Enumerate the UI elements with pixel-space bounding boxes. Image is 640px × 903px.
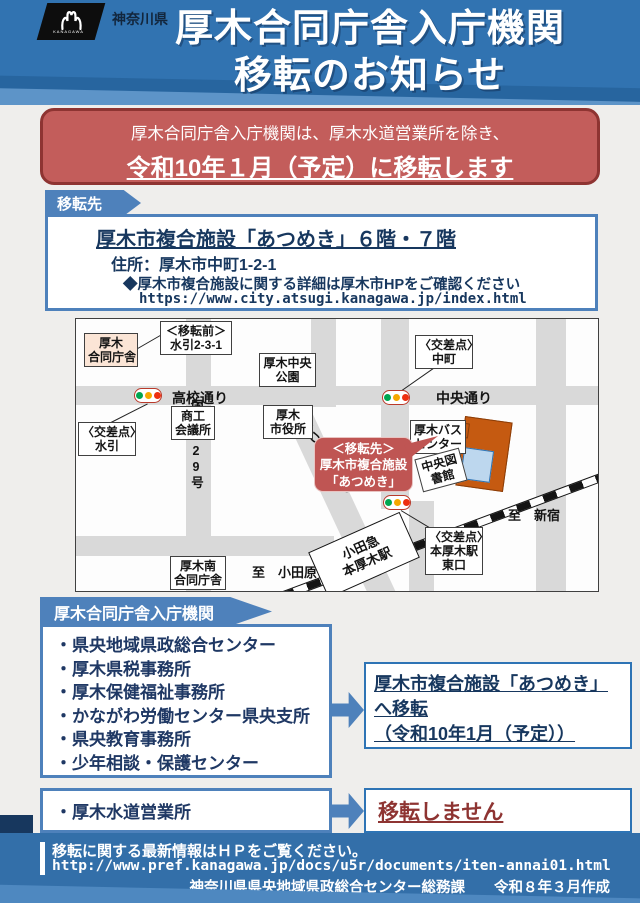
kanagawa-logo-text: KANAGAWA: [53, 29, 84, 34]
relocation-banner: 厚木合同庁舎入庁機関は、厚木水道営業所を除き、 令和10年１月（予定）に移転しま…: [40, 108, 600, 185]
footer-navy-accent: [0, 815, 33, 833]
move-destination-box: 厚木市複合施設「あつめき」へ移転 （令和10年1月（予定））: [364, 662, 632, 749]
map-label-minami-godochosha: 厚木南 合同庁舎: [170, 556, 226, 590]
list-item: ・厚木県税事務所: [55, 658, 329, 682]
header: KANAGAWA 神奈川県 厚木合同庁舎入庁機関 移転のお知らせ: [0, 0, 640, 105]
street-vertical5-band: [536, 319, 566, 592]
footer-url-link[interactable]: http://www.pref.kanagawa.jp/docs/u5r/doc…: [52, 858, 611, 874]
traffic-light-icon: [383, 495, 411, 510]
destination-facility: 厚木市複合施設「あつめき」６階・７階: [96, 223, 456, 252]
list-item: ・厚木保健福祉事務所: [55, 681, 329, 705]
map-label-xing-mizuhiki: 〈交差点〉 水引: [78, 422, 136, 456]
page-title-line1: 厚木合同庁舎入庁機関: [110, 6, 630, 53]
destination-tag-label: 移転先: [57, 193, 102, 214]
page-title-line2: 移転のお知らせ: [110, 53, 630, 100]
water-office-status-box: 移転しません: [364, 788, 632, 833]
map-label-chuo-park: 厚木中央 公園: [259, 353, 316, 387]
page-title: 厚木合同庁舎入庁機関 移転のお知らせ: [110, 6, 630, 100]
notice-page: KANAGAWA 神奈川県 厚木合同庁舎入庁機関 移転のお知らせ 厚木合同庁舎入…: [0, 0, 640, 903]
map-label-before-move: ＜移転前＞ 水引2-3-1: [160, 321, 232, 355]
map-label-xing-honatsugi-east: 〈交差点〉 本厚木駅 東口: [425, 527, 483, 575]
traffic-light-icon: [382, 390, 410, 405]
banner-line1: 厚木合同庁舎入庁機関は、厚木水道営業所を除き、: [43, 120, 597, 144]
list-item: ・少年相談・保護センター: [55, 752, 329, 776]
map-direction-shinjuku: 至 新宿: [508, 505, 560, 524]
arrow-right-icon: [332, 692, 364, 728]
list-item: ・県央地域県政総合センター: [55, 634, 329, 658]
move-destination-line1: 厚木市複合施設「あつめき」へ移転: [374, 672, 624, 722]
list-item: ・県央教育事務所: [55, 728, 329, 752]
water-office-box: ・厚木水道営業所: [40, 788, 332, 833]
destination-url-link[interactable]: https://www.city.atsugi.kanagawa.jp/inde…: [139, 291, 527, 307]
connector-line: [136, 334, 162, 350]
map-label-atsugi-godochosha: 厚木 合同庁舎: [84, 333, 138, 367]
destination-address: 住所：厚木市中町1-2-1: [111, 251, 276, 275]
kanagawa-pref-logo: KANAGAWA: [37, 3, 106, 40]
banner-line2: 令和10年１月（予定）に移転します: [43, 148, 597, 183]
traffic-light-icon: [134, 388, 162, 403]
footer: 移転に関する最新情報はＨＰをご覧ください。 http://www.pref.ka…: [0, 833, 640, 903]
map-direction-odawara: 至 小田原: [252, 562, 317, 581]
kanagawa-crest-icon: [58, 9, 84, 31]
street-name-chuo: 中央通り: [436, 388, 492, 408]
footer-white-bar: [40, 842, 45, 875]
map-label-xing-nakacho: 〈交差点〉 中町: [415, 335, 473, 369]
connector-line: [111, 403, 148, 423]
destination-tag: 移転先: [45, 190, 141, 216]
move-destination-line2: （令和10年1月（予定））: [374, 722, 624, 747]
map-label-shoko-kaigisho: 商工 会議所: [171, 406, 215, 440]
list-item: ・かながわ労働センター県央支所: [55, 705, 329, 729]
agencies-tag: 厚木合同庁舎入庁機関: [40, 597, 272, 626]
access-map: 高校通り 中央通り 国道129号 あつぎ大通り 厚木 合同庁舎 ＜移転前＞ 水引…: [75, 318, 599, 592]
arrow-right-icon: [332, 793, 364, 829]
map-label-city-hall: 厚木 市役所: [263, 405, 313, 439]
destination-box: 厚木市複合施設「あつめき」６階・７階 住所：厚木市中町1-2-1 ◆厚木市複合施…: [45, 214, 598, 311]
agencies-list-box: ・県央地域県政総合センター ・厚木県税事務所 ・厚木保健福祉事務所 ・かながわ労…: [40, 624, 332, 778]
water-office-status: 移転しません: [378, 796, 503, 826]
map-callout-atsumeki: ＜移転先＞ 厚木市複合施設 「あつめき」: [314, 437, 413, 492]
water-office-label: ・厚木水道営業所: [55, 798, 191, 823]
agencies-tag-label: 厚木合同庁舎入庁機関: [54, 600, 214, 624]
